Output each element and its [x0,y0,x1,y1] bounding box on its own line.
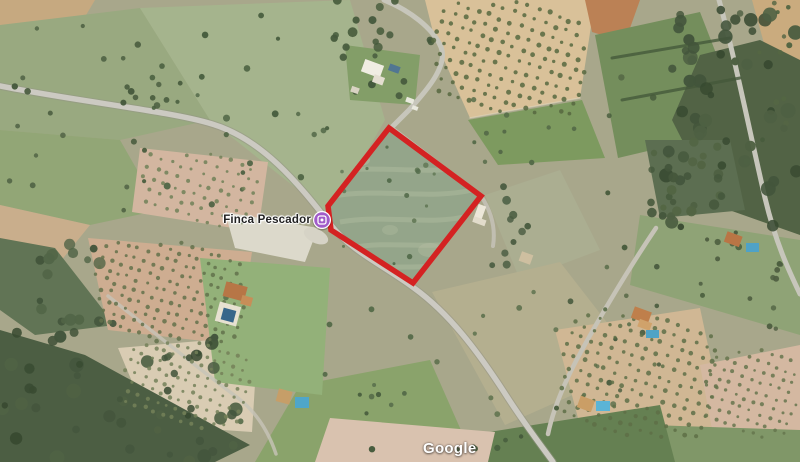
place-label-finca-pescador[interactable]: Finca Pescador [223,214,311,226]
parcel-outline [328,128,481,283]
google-logo[interactable]: Google [423,440,476,457]
map-viewport[interactable]: Finca Pescador Google [0,0,800,462]
map-overlays [0,0,800,462]
